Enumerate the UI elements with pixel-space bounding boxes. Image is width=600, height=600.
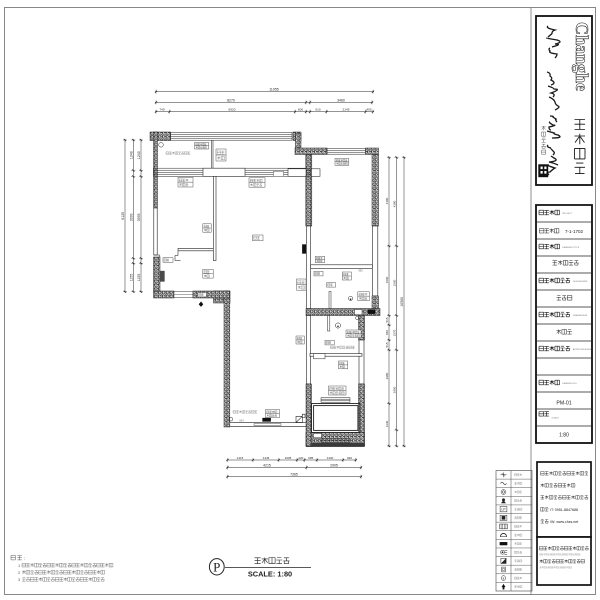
svg-text:4380: 4380 — [393, 200, 397, 207]
svg-text:930: 930 — [358, 269, 363, 273]
svg-text:6920: 6920 — [229, 108, 236, 112]
svg-text:2905: 2905 — [330, 464, 338, 468]
svg-text:1430: 1430 — [327, 456, 334, 460]
svg-text:1155: 1155 — [137, 274, 141, 282]
svg-text:1: 1 — [18, 564, 20, 568]
svg-text:1560: 1560 — [393, 279, 397, 286]
svg-text:1240: 1240 — [129, 151, 133, 159]
svg-text:2980: 2980 — [385, 372, 389, 379]
svg-text:3460: 3460 — [337, 98, 345, 102]
svg-text:3: 3 — [18, 578, 20, 582]
svg-text:6125: 6125 — [121, 212, 125, 220]
svg-text:420: 420 — [298, 456, 303, 460]
svg-text:1:80: 1:80 — [559, 433, 569, 439]
svg-text:1445: 1445 — [263, 456, 270, 460]
svg-text:600: 600 — [298, 108, 303, 112]
svg-text:LP: LP — [502, 508, 506, 512]
svg-text:/T: 0951-8847688: /T: 0951-8847688 — [550, 508, 578, 512]
svg-text:1155: 1155 — [129, 274, 133, 282]
svg-text:840: 840 — [385, 330, 389, 335]
svg-text:DRAWN/DATE: DRAWN/DATE — [573, 314, 588, 317]
svg-text:1230: 1230 — [385, 420, 389, 427]
svg-text:Changhe: Changhe — [572, 22, 592, 91]
svg-text:2: 2 — [18, 571, 20, 575]
svg-text:740: 740 — [159, 108, 164, 112]
svg-text:7-1-1702: 7-1-1702 — [565, 229, 584, 234]
svg-text:4215: 4215 — [263, 464, 271, 468]
svg-text:1240: 1240 — [137, 151, 141, 159]
svg-text:DRAWING NO.: DRAWING NO. — [562, 382, 577, 385]
svg-text::: : — [24, 556, 25, 561]
svg-text:11955: 11955 — [269, 88, 279, 92]
svg-text:DESIGN/DATE: DESIGN/DATE — [573, 280, 588, 283]
svg-text:690: 690 — [347, 456, 352, 460]
svg-text:8270: 8270 — [227, 98, 235, 102]
svg-text:SCALE: SCALE — [552, 417, 560, 420]
svg-text:1560: 1560 — [385, 276, 389, 283]
svg-text:405: 405 — [366, 108, 371, 112]
svg-text:2960: 2960 — [393, 386, 397, 393]
svg-text:4380: 4380 — [385, 197, 389, 204]
svg-text:515: 515 — [385, 317, 389, 322]
svg-text:P: P — [213, 560, 220, 575]
svg-text:7365: 7365 — [290, 473, 298, 477]
svg-text:1570: 1570 — [393, 329, 397, 336]
svg-text:10560: 10560 — [400, 297, 404, 307]
svg-text:3393: 3393 — [137, 213, 141, 221]
svg-text:APPROVED/DATE: APPROVED/DATE — [573, 348, 592, 351]
svg-text:1415: 1415 — [237, 456, 244, 460]
svg-text:2145: 2145 — [343, 108, 350, 112]
svg-text:PROJECT: PROJECT — [562, 213, 573, 215]
svg-text:3393: 3393 — [129, 213, 133, 221]
svg-text:SCALE: 1:80: SCALE: 1:80 — [248, 570, 292, 579]
svg-text:DRAWING TITLE: DRAWING TITLE — [562, 246, 580, 249]
svg-text:685: 685 — [308, 456, 313, 460]
svg-text:/W: www.chzs.net: /W: www.chzs.net — [550, 520, 578, 524]
svg-text:910: 910 — [315, 108, 320, 112]
svg-text:914: 914 — [239, 418, 244, 422]
svg-text:1005: 1005 — [285, 456, 292, 460]
svg-text:515: 515 — [385, 342, 389, 347]
svg-text:PM-01: PM-01 — [556, 401, 571, 407]
